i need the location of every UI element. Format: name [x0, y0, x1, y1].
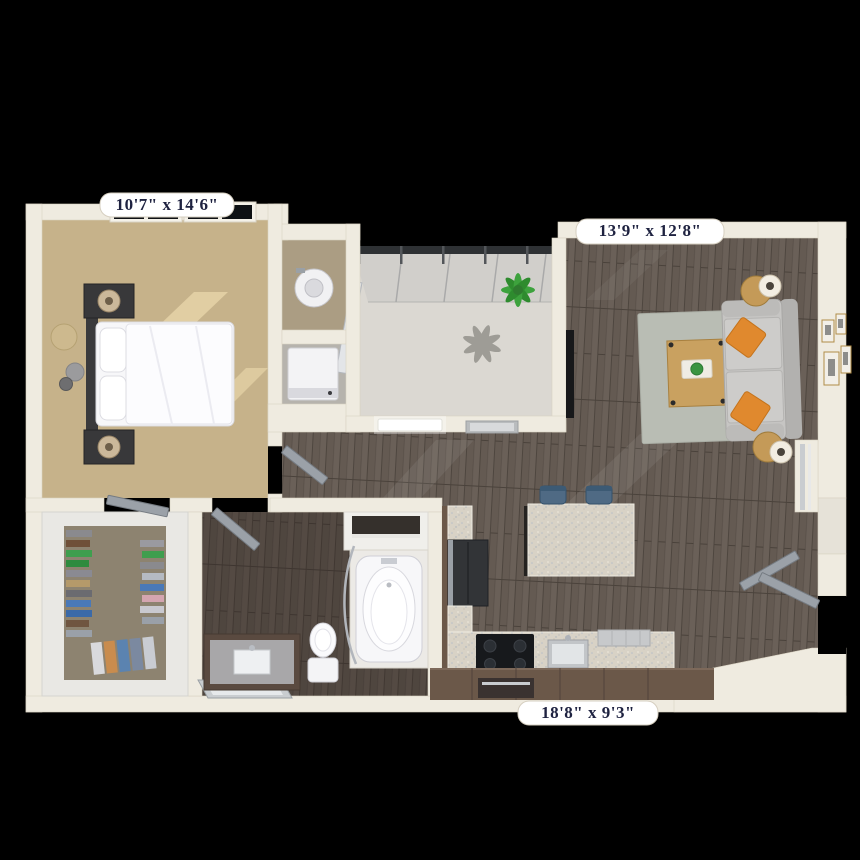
bedroom-dimension-text: 10'7" x 14'6" [116, 195, 219, 214]
floor-lamp-center [777, 448, 785, 456]
table-lamp-center [105, 297, 113, 305]
closet-top-wall [170, 498, 212, 512]
bathroom-top-wall [270, 498, 442, 512]
round-pouf [60, 378, 73, 391]
nook-door-frame [808, 444, 811, 510]
table-lamp-center [105, 443, 113, 451]
kitchen-dimension-label: 18'8" x 9'3" [518, 701, 658, 725]
coffee-table [667, 339, 727, 407]
toilet-tank [308, 658, 338, 682]
round-pouf [51, 324, 77, 350]
left-outer-wall [26, 204, 42, 712]
water-heater-top [305, 279, 323, 297]
closet-clothes-left [66, 530, 92, 637]
stove-burner [484, 640, 496, 652]
right-doorway-recess [818, 498, 846, 554]
table-plant [691, 363, 703, 375]
floor-plan-render: 10'7" x 14'6" 13'9" x 12'8" 18'8" x 9'3" [0, 0, 860, 860]
bed-duvet [126, 324, 232, 424]
washer-dial [328, 391, 332, 395]
vanity-faucet [249, 645, 255, 651]
utility-divider-wall [282, 330, 346, 344]
potted-plant [501, 273, 535, 307]
railing-post [442, 246, 445, 264]
bar-stool-back [586, 486, 612, 491]
railing-post [526, 246, 529, 264]
balcony-right-wall [552, 238, 566, 432]
railing-post [484, 246, 487, 264]
base-cabinets-edge [430, 668, 714, 670]
balcony-railing [354, 246, 566, 254]
sofa [722, 299, 803, 442]
stove-burner [485, 659, 496, 670]
balcony-sliding-door-threshold [378, 419, 442, 431]
stove-burner [514, 640, 526, 652]
kitchen-sink-basin [552, 644, 584, 664]
refrigerator-steel-side [448, 540, 453, 606]
balcony-glass-shadow [354, 254, 566, 302]
railing-post [400, 246, 403, 264]
balcony-left-wall [346, 224, 360, 432]
tub-faucet [381, 558, 397, 564]
balcony-glass-panel-inner [470, 423, 514, 431]
living-room-dimension-text: 13'9" x 12'8" [599, 221, 702, 240]
stove-burner [515, 659, 526, 670]
linen-shelf-interior [352, 516, 420, 536]
closet-hanging-clothes [91, 636, 157, 674]
bed-pillow [100, 376, 126, 420]
living-room-dimension-label: 13'9" x 12'8" [576, 219, 724, 244]
floor-plan-canvas: 10'7" x 14'6" 13'9" x 12'8" 18'8" x 9'3" [0, 0, 860, 860]
nook-door-edge [800, 444, 805, 510]
linen-shelf-board [352, 534, 420, 538]
dish-rack [598, 630, 650, 646]
right-outer-wall [818, 554, 846, 596]
oven-handle [482, 682, 530, 685]
closet-bathroom-divider-wall [188, 512, 202, 696]
tub-drain [387, 583, 392, 588]
bathtub-basin-inner [371, 580, 407, 644]
kitchen-faucet [565, 635, 571, 641]
toilet-seat [315, 629, 331, 651]
entry-door-opening [818, 596, 846, 654]
base-cabinets [430, 668, 714, 700]
walk-in-closet [42, 512, 188, 696]
water-heater-pipe [296, 268, 305, 273]
bed-pillow [100, 328, 126, 372]
bedroom-dimension-label: 10'7" x 14'6" [100, 193, 234, 217]
floor-lamp-center [766, 282, 774, 290]
bar-stool-back [540, 486, 566, 491]
kitchen-island [528, 504, 634, 576]
kitchen-dimension-text: 18'8" x 9'3" [541, 703, 635, 722]
closet-top-wall [26, 498, 104, 512]
vanity-sink [234, 650, 270, 674]
entry-nook-wall [795, 440, 818, 512]
oven-front [478, 678, 534, 698]
wall-mounted-tv [566, 330, 574, 418]
counter-granite [448, 506, 472, 540]
